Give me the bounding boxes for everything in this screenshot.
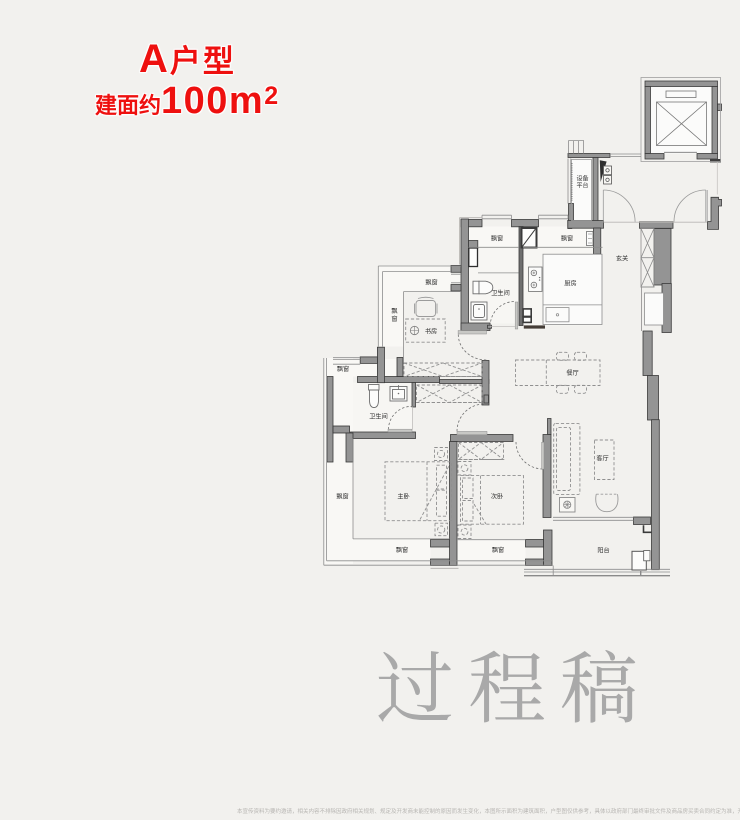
svg-text:卫生间: 卫生间 (491, 289, 510, 297)
svg-text:书房: 书房 (425, 328, 437, 336)
svg-text:飘: 飘 (391, 308, 397, 315)
svg-text:厨房: 厨房 (564, 279, 576, 287)
svg-text:飘窗: 飘窗 (337, 365, 349, 373)
svg-text:设备: 设备 (576, 174, 588, 182)
svg-text:卫生间: 卫生间 (369, 412, 388, 420)
svg-text:主卧: 主卧 (397, 493, 409, 501)
svg-text:次卧: 次卧 (491, 493, 503, 501)
svg-text:飘窗: 飘窗 (492, 546, 504, 554)
svg-text:飘窗: 飘窗 (425, 278, 437, 286)
svg-text:窗: 窗 (391, 315, 397, 323)
svg-text:飘窗: 飘窗 (396, 546, 408, 554)
svg-text:飘窗: 飘窗 (336, 493, 348, 501)
svg-text:餐厅: 餐厅 (566, 369, 578, 377)
svg-text:阳台: 阳台 (597, 547, 609, 555)
svg-text:飘窗: 飘窗 (561, 235, 573, 243)
svg-text:玄关: 玄关 (616, 254, 628, 262)
svg-text:客厅: 客厅 (596, 454, 608, 462)
svg-text:平台: 平台 (576, 182, 588, 190)
svg-text:飘窗: 飘窗 (491, 235, 503, 243)
